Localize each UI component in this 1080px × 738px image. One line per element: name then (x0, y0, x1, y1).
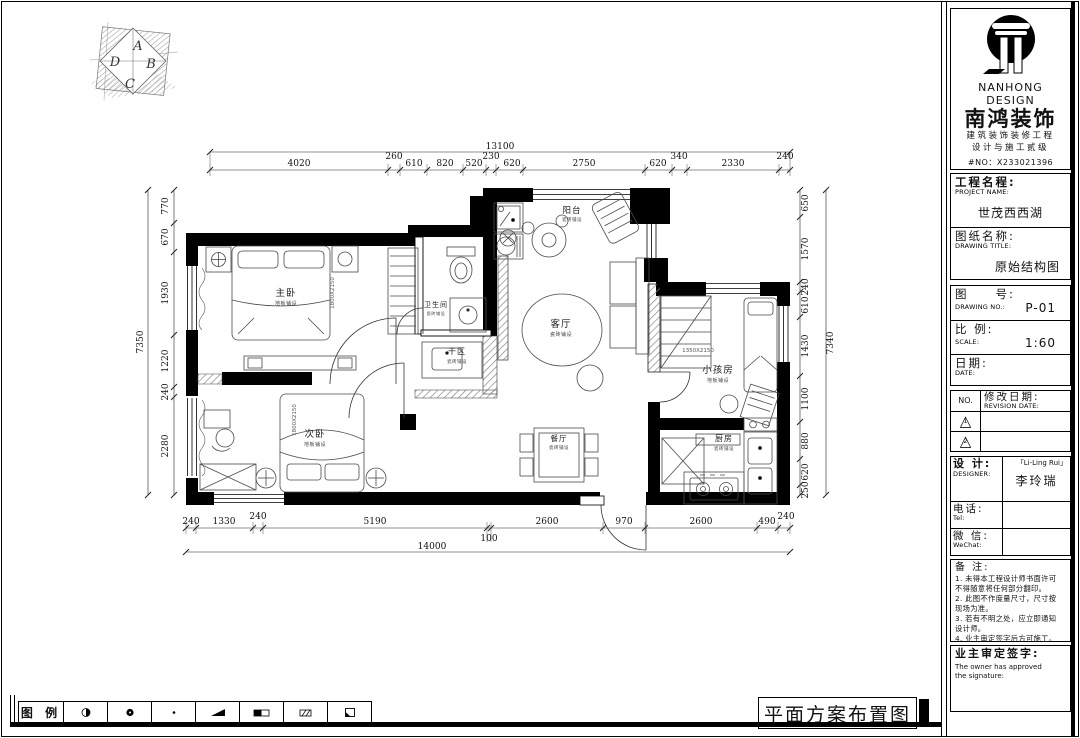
legend-bar: 图 例 (18, 701, 372, 724)
dim: 1570 (801, 237, 811, 260)
revision-triangle-1-icon: △1 (957, 413, 975, 429)
revision-block: NO. 修改日期: REVISION DATE: △1 △2 (950, 390, 1071, 452)
dim: 240 (182, 517, 199, 527)
floor-plan: A B C D (0, 0, 941, 738)
compass-letter-c: C (125, 77, 135, 92)
dim: 340 (670, 152, 687, 162)
owner-signature-block: 业主审定签字: The owner has approved the signa… (950, 645, 1071, 712)
compass-letter-a: A (132, 39, 142, 54)
room-floor-living: 瓷砖铺设 (550, 331, 572, 338)
room-label-master: 主卧 (275, 287, 296, 299)
curtain-lines (199, 268, 205, 476)
legend-hatched-box-icon (284, 702, 328, 723)
room-label-kitchen: 厨房 (715, 433, 733, 443)
dim: 260 (385, 152, 402, 162)
legend-dot-icon (152, 702, 196, 723)
wechat-sublabel: WeChat: (953, 542, 1000, 550)
dim: 820 (436, 159, 453, 169)
room-label-second: 次卧 (304, 428, 325, 440)
dim: 2330 (722, 159, 745, 169)
drawing-title-sublabel: DRAWING TITLE: (955, 243, 1066, 251)
designer-name-en: 「Li-Ling Rui」 (1006, 458, 1067, 468)
second-chair (204, 410, 234, 451)
drawing-sheet: A B C D (0, 0, 1080, 738)
revision-triangle-2-icon: △2 (957, 433, 975, 449)
dim: 490 (758, 517, 775, 527)
designer-sublabel: DESIGNER: (953, 471, 1000, 479)
dim: 1930 (161, 281, 171, 304)
room-floor-kids: 地板铺设 (707, 377, 729, 384)
tel-value (1003, 502, 1070, 528)
legend-corner-filled-box-icon (328, 702, 371, 723)
room-floor-second: 地板铺设 (304, 441, 326, 448)
dim: 620 (801, 463, 811, 480)
legend-label: 图 例 (19, 702, 64, 723)
legend-filled-circle-icon (108, 702, 152, 723)
dim-bottom-total: 14000 (418, 542, 447, 552)
designer-label: 设 计: (953, 458, 1000, 471)
dim: 520 (465, 159, 482, 169)
sheet-right-edge-bar (1071, 2, 1075, 736)
dim: 230 (482, 152, 499, 162)
dim: 2600 (536, 517, 559, 527)
compass-letter-b: B (145, 57, 156, 72)
drawing-no-block: 图 号: DRAWING NO.: P-01 (950, 285, 1071, 321)
brand-license-no: #NO：X233021396 (955, 157, 1066, 168)
second-wardrobe (200, 464, 256, 490)
dim: 250 (801, 481, 811, 498)
room-label-bathroom: 卫生间 (424, 300, 448, 309)
dim: 240 (161, 383, 171, 400)
revision-no-label: NO. (951, 391, 981, 412)
titleblock-separator (941, 2, 942, 736)
note-line: 2. 此图不作度量尺寸，尺寸按 (955, 594, 1066, 604)
bathroom-vanity (450, 298, 486, 332)
dim: 650 (801, 194, 811, 211)
company-logo-icon (975, 13, 1047, 75)
scale-sublabel: SCALE: (955, 339, 979, 347)
dim: 620 (649, 159, 666, 169)
dim: 970 (615, 517, 632, 527)
scale-block: 比 例: SCALE: 1:60 (950, 320, 1071, 355)
project-name-sublabel: PROJECT NAME: (955, 189, 1066, 197)
bed-size-second: 1800X2150 (292, 404, 298, 436)
dim: 620 (503, 159, 520, 169)
dim: 1430 (801, 334, 811, 357)
dim: 1100 (801, 387, 811, 410)
legend-half-filled-bar-icon (240, 702, 284, 723)
designer-name-cn: 李玲瑞 (1006, 472, 1067, 489)
dim: 100 (480, 534, 497, 544)
brand-name-cn: 南鸿装饰 (955, 107, 1066, 131)
tel-sublabel: Tel: (953, 515, 1000, 523)
legend-half-filled-circle-icon (64, 702, 108, 723)
toilet (447, 247, 475, 283)
scale-label: 比 例: (955, 323, 1066, 336)
frame-corner-line (10, 695, 11, 727)
room-floor-master: 地板铺设 (275, 300, 297, 307)
frame-bottom-bar (10, 722, 941, 727)
compass-orientation-icon: A B C D (88, 22, 178, 100)
room-label-kids: 小孩房 (702, 364, 734, 376)
drawing-title-block: 图纸名称: DRAWING TITLE: 原始结构图 (950, 227, 1071, 280)
room-label-balcony: 阳台 (562, 205, 581, 216)
date-sublabel: DATE: (955, 370, 1066, 378)
room-floor-dining: 瓷砖铺设 (549, 444, 569, 451)
revision-sublabel: REVISION DATE: (984, 403, 1039, 411)
stairs (661, 296, 711, 368)
frame-corner-line (14, 695, 15, 727)
dim-right-total: 7340 (826, 331, 836, 354)
wechat-value (1003, 529, 1070, 555)
date-block: 日期: DATE: (950, 354, 1071, 386)
dim: 4020 (288, 159, 311, 169)
note-line: 现场为准。 (955, 604, 1066, 614)
room-floor-balcony: 瓷砖铺设 (562, 216, 582, 223)
room-label-dining: 餐厅 (551, 434, 568, 443)
drawing-no-sublabel: DRAWING NO.: (955, 304, 1005, 312)
titleblock-separator (946, 2, 947, 736)
dim: 2280 (161, 434, 171, 457)
room-floor-dryarea: 瓷砖铺设 (447, 358, 467, 365)
brand-name-en: NANHONG DESIGN (955, 81, 1066, 107)
room-floor-kitchen: 瓷砖铺设 (714, 445, 734, 452)
master-dresser (244, 356, 356, 370)
notes-label: 备 注: (955, 562, 1066, 574)
note-line: 1. 未得本工程设计师书面许可 (955, 574, 1066, 584)
fridge (662, 438, 704, 484)
notes-block: 备 注: 1. 未得本工程设计师书面许可 不得随意将任何部分翻印。 2. 此图不… (950, 559, 1071, 642)
owner-label: 业主审定签字: (955, 648, 1066, 661)
tv-cabinet (498, 256, 508, 360)
scale-value: 1:60 (1025, 336, 1066, 350)
dim: 2750 (573, 159, 596, 169)
bed-size-kids: 1350X2150 (682, 348, 714, 354)
bed-size-master: 1800X2150 (330, 277, 336, 309)
dim: 2600 (690, 517, 713, 527)
project-name-block: 工程名程: PROJECT NAME: 世茂西西湖 (950, 173, 1071, 228)
note-line: 4. 业主审定签字后方可施工。 (955, 634, 1066, 644)
project-name-value: 世茂西西湖 (955, 204, 1066, 221)
compass-letter-d: D (109, 55, 121, 70)
room-floor-bathroom: 瓷砖铺设 (427, 310, 446, 317)
living-rug (522, 294, 603, 391)
drawing-no-label: 图 号: (955, 288, 1066, 301)
brand-line1: 建筑装饰装修工程 (955, 131, 1066, 142)
dim: 610 (405, 159, 422, 169)
dim: 610 (801, 296, 811, 313)
brand-line2: 设计与施工贰级 (955, 143, 1066, 154)
master-wardrobe (388, 248, 418, 334)
dim: 1330 (213, 517, 236, 527)
kids-bed (744, 298, 777, 392)
sofa (610, 258, 649, 354)
dim: 5190 (364, 517, 387, 527)
dim-top-total: 13100 (486, 142, 515, 152)
dim: 670 (161, 228, 171, 245)
dim-left-total: 7350 (136, 330, 146, 353)
legend-filled-wedge-icon (196, 702, 240, 723)
note-line: 3. 若有不明之处，应立即通知 (955, 614, 1066, 624)
company-logo-block: NANHONG DESIGN 南鸿装饰 建筑装饰装修工程 设计与施工贰级 #NO… (950, 8, 1071, 170)
dim: 240 (777, 512, 794, 522)
room-label-dryarea: 干区 (448, 347, 466, 356)
dim: 240 (249, 512, 266, 522)
laundry-sink (494, 203, 523, 232)
room-label-living: 客厅 (550, 318, 571, 330)
title-end-bar (919, 699, 929, 723)
owner-subline-1: The owner has approved (955, 663, 1066, 673)
wechat-block: 微 信: WeChat: (950, 528, 1071, 556)
walls-thin (415, 237, 491, 336)
note-line: 设计师。 (955, 624, 1066, 634)
owner-subline-2: the signature: (955, 672, 1066, 682)
dim: 1220 (161, 349, 171, 372)
drawing-title-value: 原始结构图 (955, 258, 1066, 275)
dim: 240 (776, 152, 793, 162)
drawing-no-value: P-01 (1025, 301, 1066, 315)
dim: 770 (161, 197, 171, 214)
designer-block: 设 计: DESIGNER: 「Li-Ling Rui」 李玲瑞 (950, 456, 1071, 502)
dim: 240 (801, 278, 811, 295)
dim: 880 (801, 432, 811, 449)
tel-block: 电话: Tel: (950, 501, 1071, 529)
kitchen-counters (684, 418, 777, 504)
note-line: 不得随意将任何部分翻印。 (955, 584, 1066, 594)
